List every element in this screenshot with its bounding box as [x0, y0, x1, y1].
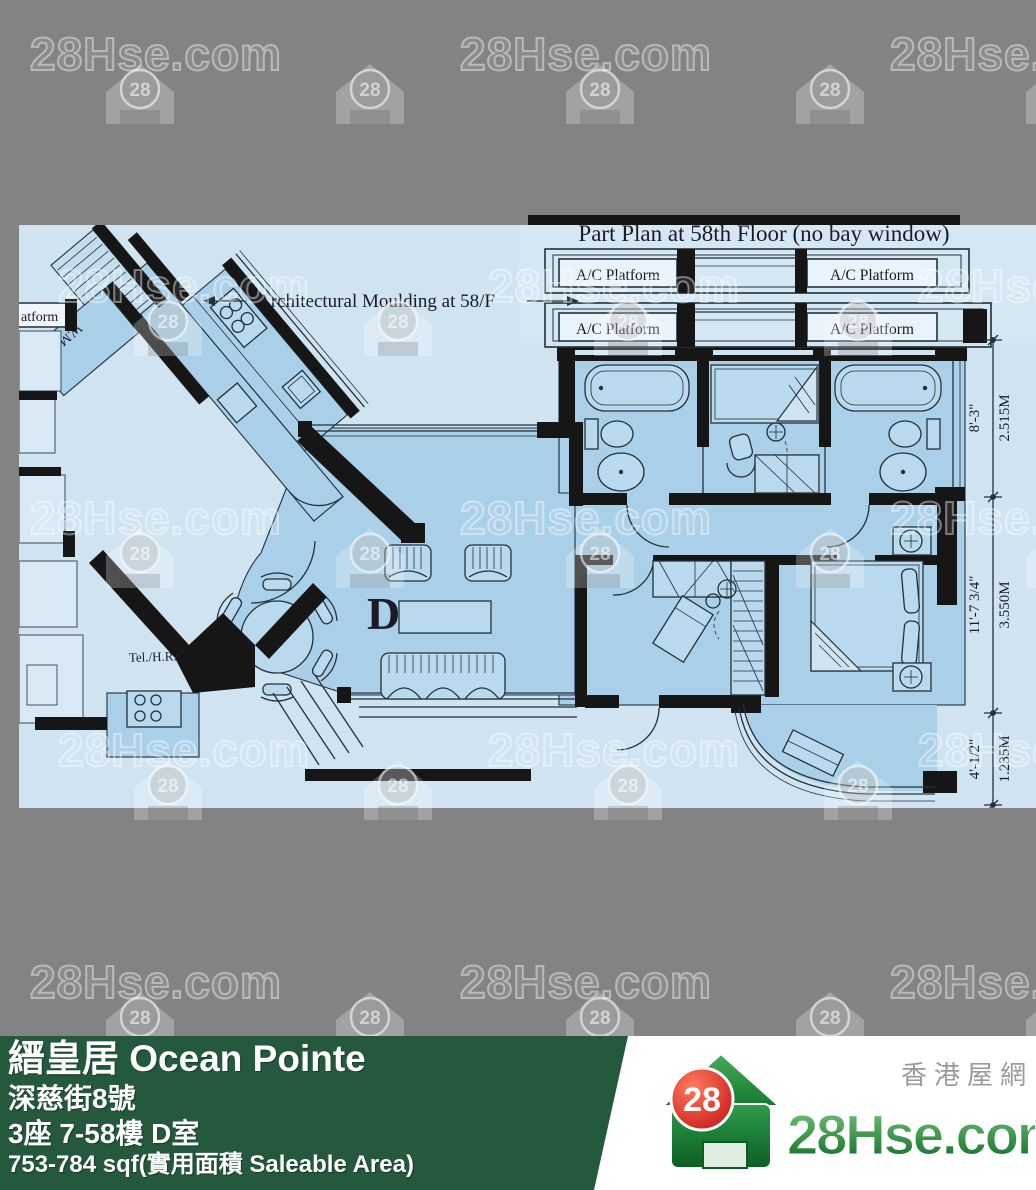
left-platform-box: atform — [19, 299, 77, 331]
toilet-icon — [889, 419, 940, 449]
dim-meters: 1.235M — [997, 735, 1013, 782]
svg-text:28Hse.com: 28Hse.com — [890, 28, 1036, 80]
ac-platform-label: A/C Platform — [576, 321, 660, 338]
sofa-icon — [381, 653, 505, 699]
toilet-icon — [585, 419, 633, 449]
pillow-icon — [901, 620, 920, 665]
screenshot-stage: W.M.R. — [0, 0, 1036, 1190]
estate-unit: 3座 7-58樓 D室 — [8, 1119, 199, 1148]
dim-meters: 2.515M — [997, 394, 1013, 441]
coffee-table-icon — [399, 601, 491, 633]
armchair-icon — [385, 545, 431, 581]
dim-feet: 4'-1/2" — [967, 739, 983, 780]
logo-brand-text: 28Hse.com — [787, 1103, 1035, 1166]
svg-text:28Hse.com: 28Hse.com — [460, 28, 712, 80]
stove-icon — [127, 691, 181, 727]
logo-badge: 28 — [683, 1081, 721, 1119]
tel-hr-label: Tel./H.R. — [129, 648, 177, 665]
dim-feet: 11'-7 3/4" — [967, 576, 983, 635]
floor-plan: W.M.R. — [19, 225, 1036, 808]
svg-text:28Hse.com: 28Hse.com — [460, 956, 712, 1008]
ac-platform-label: A/C Platform — [576, 267, 660, 284]
wardrobe-icon — [731, 561, 765, 695]
brand-logo: 28 28Hse.com 香港屋網 — [645, 1042, 1035, 1184]
estate-title: 縉皇居 Ocean Pointe — [8, 1040, 366, 1079]
moulding-label: Architectural Moulding at 58/F — [257, 291, 495, 312]
logo-tagline: 香港屋網 — [901, 1060, 1033, 1090]
platform-partial-label: atform — [21, 310, 58, 325]
svg-text:28Hse.com: 28Hse.com — [30, 956, 282, 1008]
estate-area: 753-784 sqf(實用面積 Saleable Area) — [8, 1152, 414, 1177]
unit-letter-label: D — [367, 588, 400, 639]
double-bed-icon — [811, 561, 923, 671]
shelf-icon — [653, 561, 731, 597]
dim-meters: 3.550M — [997, 581, 1013, 628]
ac-platform-label: A/C Platform — [830, 321, 914, 338]
armchair-icon — [465, 545, 511, 581]
dim-feet: 8'-3" — [967, 404, 983, 433]
ac-platform-label: A/C Platform — [830, 267, 914, 284]
svg-text:28Hse.com: 28Hse.com — [30, 28, 282, 80]
svg-text:28Hse.com: 28Hse.com — [890, 956, 1036, 1008]
estate-address: 深慈街8號 — [8, 1084, 136, 1113]
pillow-icon — [901, 568, 920, 613]
house-logo-icon: 28 — [663, 1054, 779, 1168]
plan-title: Part Plan at 58th Floor (no bay window) — [578, 225, 949, 246]
